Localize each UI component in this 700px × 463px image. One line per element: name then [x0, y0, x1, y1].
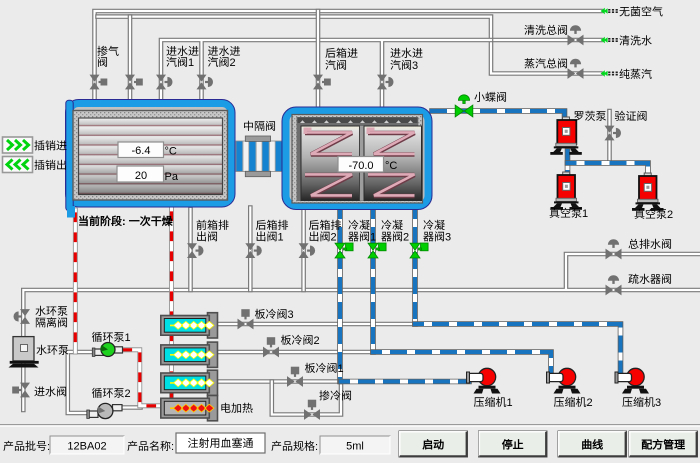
svg-text:进水阀: 进水阀 — [34, 386, 67, 399]
svg-text:冷凝: 冷凝 — [423, 219, 445, 232]
svg-text:后箱进: 后箱进 — [325, 47, 358, 60]
svg-text:前箱排: 前箱排 — [196, 219, 229, 232]
svg-text:曲线: 曲线 — [581, 439, 603, 452]
svg-text:阀: 阀 — [97, 56, 108, 69]
svg-text:板冷阀2: 板冷阀2 — [281, 334, 320, 347]
svg-text:压缩机1: 压缩机1 — [474, 396, 513, 409]
svg-text:出阀1: 出阀1 — [256, 231, 284, 244]
svg-text:停止: 停止 — [502, 439, 524, 452]
svg-text:掺冷阀: 掺冷阀 — [319, 390, 352, 403]
svg-text:隔离阀: 隔离阀 — [35, 317, 68, 330]
svg-text:汽阀2: 汽阀2 — [208, 56, 236, 69]
svg-text:压缩机2: 压缩机2 — [554, 396, 593, 409]
svg-text:进水进: 进水进 — [390, 47, 423, 60]
svg-text:插销出: 插销出 — [34, 159, 67, 172]
svg-text:真空泵1: 真空泵1 — [549, 207, 588, 220]
svg-text:纯蒸汽: 纯蒸汽 — [619, 68, 652, 81]
svg-text:无菌空气: 无菌空气 — [619, 6, 663, 19]
svg-text:板冷阀1: 板冷阀1 — [305, 362, 344, 375]
svg-text:°C: °C — [165, 146, 177, 158]
svg-text:°C: °C — [385, 160, 397, 172]
svg-text:循环泵2: 循环泵2 — [92, 387, 131, 400]
svg-text:压缩机3: 压缩机3 — [622, 396, 661, 409]
svg-text:产品名称:: 产品名称: — [127, 440, 174, 453]
svg-text:疏水器阀: 疏水器阀 — [628, 273, 672, 286]
svg-text:注射用血塞通: 注射用血塞通 — [188, 437, 254, 450]
svg-text:罗茨泵: 罗茨泵 — [574, 110, 607, 123]
svg-text:清洗总阀: 清洗总阀 — [524, 24, 568, 37]
svg-text:12BA02: 12BA02 — [67, 441, 106, 453]
svg-text:中隔阀: 中隔阀 — [243, 120, 276, 133]
svg-text:20: 20 — [135, 170, 147, 182]
svg-text:出阀2: 出阀2 — [309, 231, 337, 244]
svg-text:配方管理: 配方管理 — [641, 439, 685, 452]
svg-text:器阀3: 器阀3 — [423, 231, 451, 244]
svg-text:小蝶阀: 小蝶阀 — [474, 91, 507, 104]
svg-text:-70.0: -70.0 — [348, 160, 373, 172]
svg-text:插销进: 插销进 — [34, 140, 67, 153]
svg-text:真空泵2: 真空泵2 — [634, 208, 673, 221]
svg-text:清洗水: 清洗水 — [619, 35, 652, 48]
svg-text:后箱排: 后箱排 — [256, 219, 289, 232]
svg-text:汽阀: 汽阀 — [325, 59, 347, 72]
svg-text:器阀1: 器阀1 — [348, 231, 376, 244]
svg-text:汽阀1: 汽阀1 — [166, 56, 194, 69]
svg-text:-6.4: -6.4 — [132, 145, 151, 157]
svg-text:验证阀: 验证阀 — [615, 110, 648, 123]
svg-text:Pa: Pa — [165, 171, 179, 183]
svg-text:后箱排: 后箱排 — [309, 219, 342, 232]
svg-text:水环泵: 水环泵 — [36, 344, 69, 357]
svg-text:循环泵1: 循环泵1 — [92, 331, 131, 344]
svg-text:产品批号:: 产品批号: — [3, 440, 50, 453]
svg-text:汽阀3: 汽阀3 — [390, 59, 418, 72]
svg-text:板冷阀3: 板冷阀3 — [255, 308, 294, 321]
svg-text:水环泵: 水环泵 — [35, 305, 68, 318]
svg-text:出阀: 出阀 — [196, 231, 218, 244]
svg-text:冷凝: 冷凝 — [348, 219, 370, 232]
svg-text:当前阶段: 一次干燥: 当前阶段: 一次干燥 — [78, 215, 174, 228]
svg-text:总排水阀: 总排水阀 — [628, 238, 672, 251]
svg-text:冷凝: 冷凝 — [381, 219, 403, 232]
svg-text:产品规格:: 产品规格: — [271, 440, 318, 453]
svg-text:蒸汽总阀: 蒸汽总阀 — [524, 58, 568, 71]
svg-text:5ml: 5ml — [346, 441, 364, 453]
svg-text:启动: 启动 — [422, 439, 444, 452]
svg-text:电加热: 电加热 — [220, 402, 253, 415]
svg-text:器阀2: 器阀2 — [381, 231, 409, 244]
